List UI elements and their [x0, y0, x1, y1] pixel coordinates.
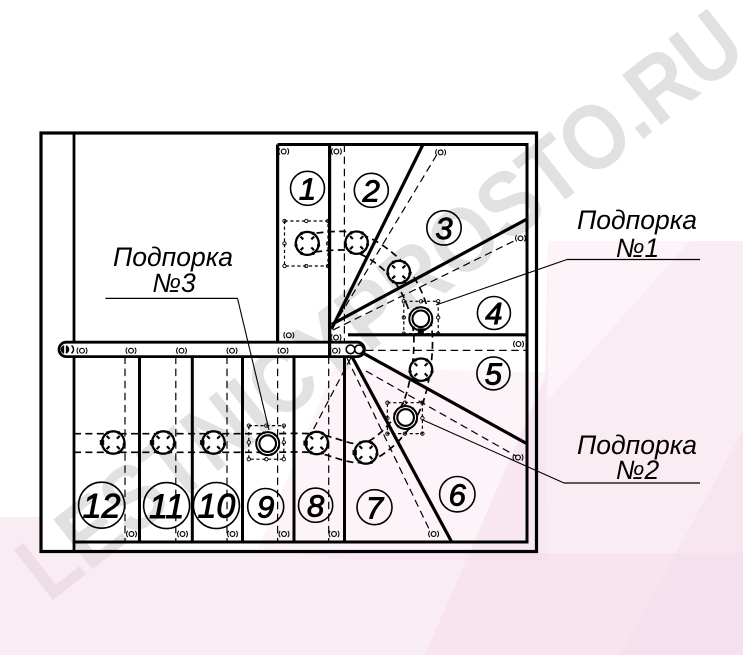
svg-text:№1: №1 [616, 233, 659, 263]
svg-text:5: 5 [485, 357, 503, 392]
svg-text:9: 9 [257, 490, 274, 525]
svg-text:№3: №3 [152, 268, 196, 298]
svg-text:12: 12 [83, 487, 121, 525]
svg-text:2: 2 [362, 174, 380, 209]
svg-text:10: 10 [197, 488, 235, 526]
svg-text:7: 7 [366, 490, 385, 525]
svg-text:№2: №2 [616, 455, 660, 485]
svg-text:8: 8 [307, 488, 325, 523]
svg-text:6: 6 [449, 477, 467, 512]
svg-text:3: 3 [435, 211, 452, 246]
svg-text:Подпорка: Подпорка [577, 205, 697, 235]
svg-text:11: 11 [149, 488, 184, 526]
svg-text:1: 1 [299, 172, 316, 207]
svg-text:4: 4 [485, 296, 502, 331]
